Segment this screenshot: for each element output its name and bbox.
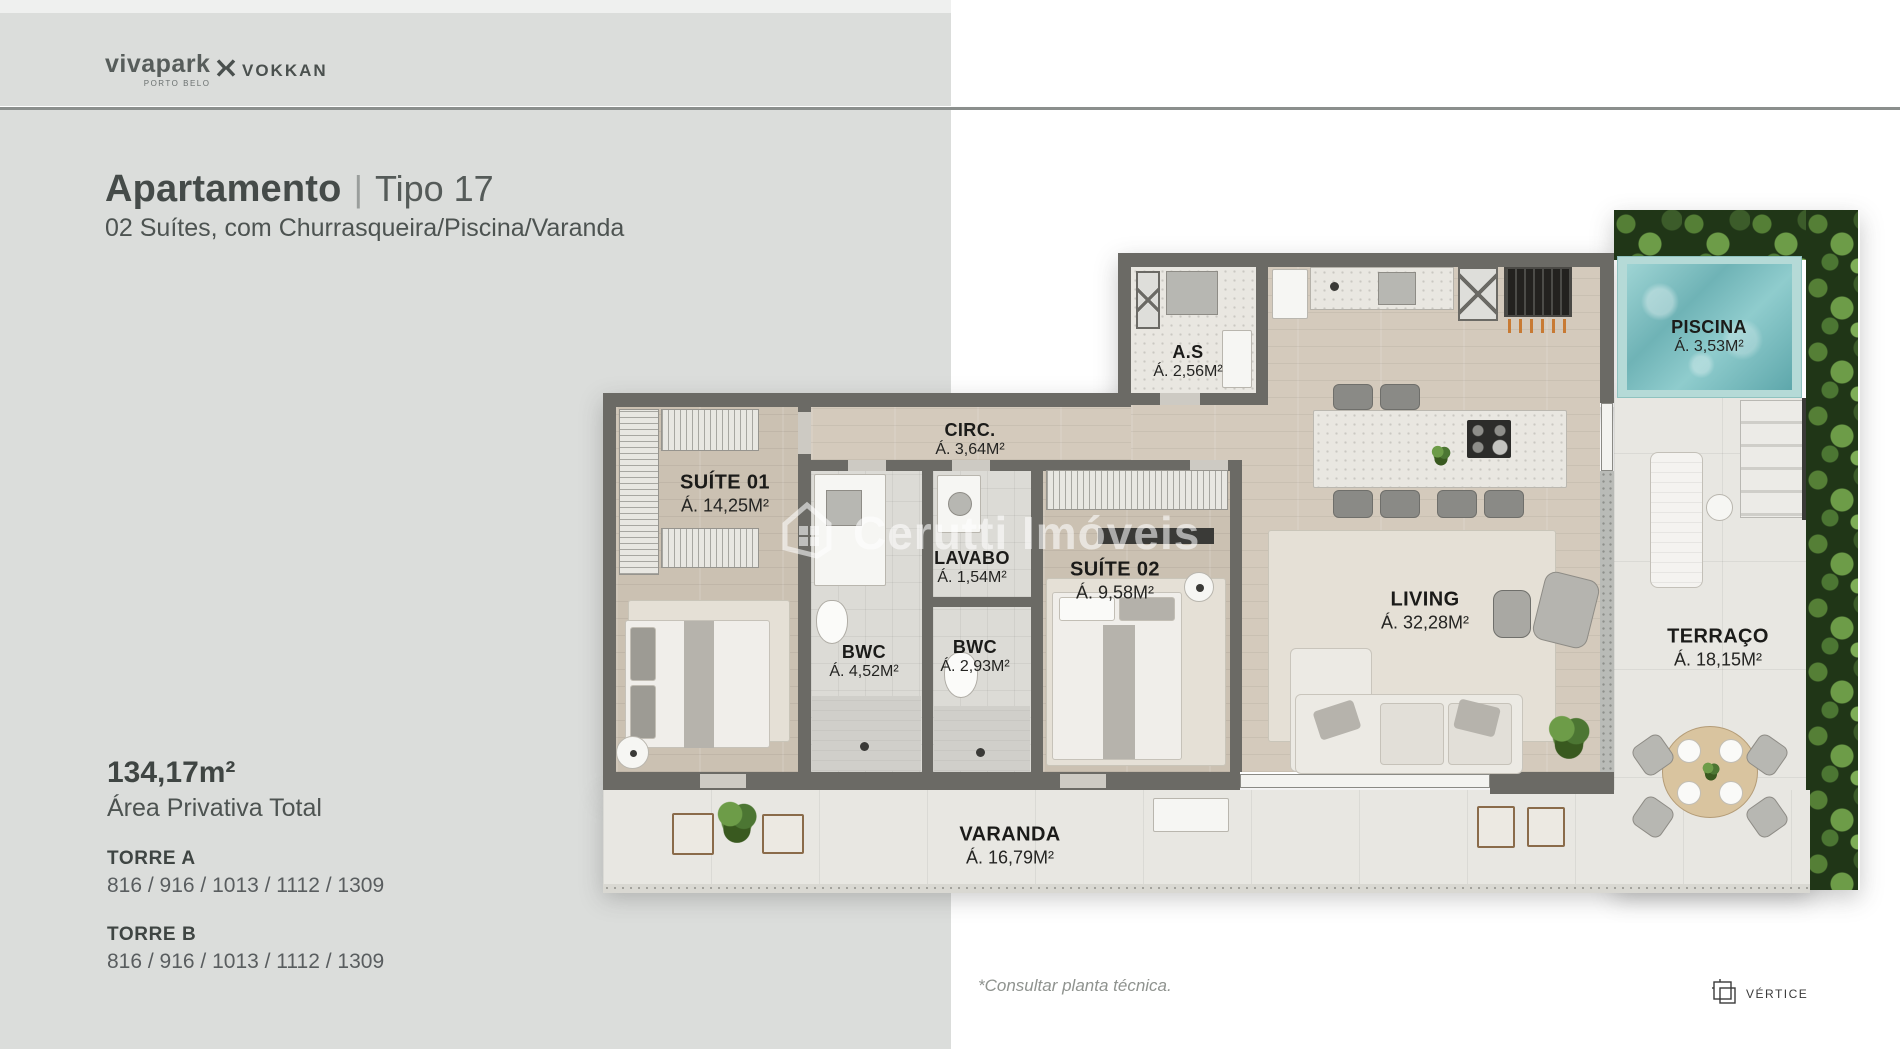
bwc1-shower-head (860, 742, 869, 751)
suite2-bed (1052, 592, 1182, 760)
room-label-varanda: VARANDA Á. 16,79M² (959, 824, 1060, 869)
living-pouf (1493, 590, 1531, 638)
room-label-suite-01: SUÍTE 01 Á. 14,25M² (680, 472, 770, 517)
island-stool (1333, 384, 1373, 410)
room-label-piscina: PISCINA Á. 3,53M² (1671, 317, 1747, 357)
page: vivapark PORTO BELO VOKKAN Apartamento |… (0, 0, 1900, 1049)
wall-bottom-suites (603, 772, 1240, 790)
vertice-logo: VÉRTICE (1712, 978, 1808, 1010)
wall-suite2-right (1230, 460, 1242, 772)
sun-lounger (1650, 452, 1703, 588)
kitchen-sink (1378, 272, 1416, 305)
varanda-bench (1153, 798, 1229, 832)
suite1-pillow (630, 627, 656, 681)
terrace-stairs (1740, 400, 1804, 518)
suite1-varanda-door (700, 774, 746, 788)
island-chair (1437, 490, 1477, 518)
wall-left (603, 393, 616, 790)
room-label-bwc1: BWC Á. 4,52M² (829, 642, 898, 682)
island-chair (1484, 490, 1524, 518)
suite2-bed-runner (1103, 625, 1135, 759)
bwc2-shower-head (976, 748, 985, 757)
bwc2-shower (934, 706, 1030, 771)
kitchen-faucet (1330, 282, 1339, 291)
living-varanda-glass-doors (1240, 774, 1490, 788)
bwc1-shower (812, 696, 921, 771)
right-greenery-strip (1806, 210, 1858, 890)
suite2-table-dot (1196, 584, 1204, 592)
wall-right-upper (1600, 253, 1614, 403)
churrasqueira-skewers (1508, 319, 1568, 333)
room-label-as: A.S Á. 2,56M² (1153, 342, 1222, 382)
island-chair (1333, 490, 1373, 518)
suite2-side-table (1184, 572, 1214, 602)
plate (1719, 739, 1743, 763)
wall-bottom-living (1490, 772, 1614, 794)
floor-plan: SUÍTE 01 Á. 14,25M² CIRC. Á. 3,64M² A.S … (0, 0, 1900, 1049)
wall-kitchen-step (1118, 253, 1131, 407)
lavabo-door (952, 460, 990, 471)
as-door (1160, 393, 1200, 405)
room-label-terraco: TERRAÇO Á. 18,15M² (1667, 626, 1769, 671)
as-laundry-sink (1166, 271, 1218, 315)
bwc1-door (848, 460, 886, 471)
plate (1677, 739, 1701, 763)
wall-as-right (1256, 267, 1268, 393)
terrace-door-glass (1601, 403, 1613, 471)
varanda-stool (762, 814, 804, 854)
room-label-bwc2: BWC Á. 2,93M² (940, 637, 1009, 677)
wall-right-lower (1600, 471, 1614, 772)
suite1-round-table (616, 736, 649, 769)
outdoor-curb (603, 884, 1810, 893)
suite1-wardrobe-mid (661, 528, 759, 568)
suite1-bed (625, 620, 770, 748)
living-sofa (1295, 694, 1523, 774)
watermark-house-icon (775, 498, 839, 567)
wall-top-left (603, 393, 1118, 407)
island-bowl (1430, 444, 1452, 466)
kitchen-duct-shaft (1458, 267, 1498, 321)
bwc1-toilet (816, 600, 848, 644)
churrasqueira-grill (1504, 267, 1572, 317)
wall-kitchen-top (1118, 253, 1614, 267)
living-plant (1545, 712, 1593, 760)
as-duct-shaft (1136, 271, 1160, 329)
suite1-table-dot (630, 750, 637, 757)
room-label-circ: CIRC. Á. 3,64M² (935, 420, 1004, 460)
island-cooktop (1467, 420, 1511, 458)
as-shelf (1222, 330, 1252, 388)
outdoor-chair (1527, 807, 1565, 847)
wall-lavabo-bwc2 (933, 597, 1031, 607)
technical-note: *Consultar planta técnica. (978, 976, 1172, 996)
terrace-dining-table (1662, 726, 1758, 818)
island-chair (1380, 490, 1420, 518)
plate (1677, 781, 1701, 805)
varanda-stool (672, 813, 714, 855)
room-label-living: LIVING Á. 32,28M² (1381, 589, 1469, 634)
stairs-rail (1802, 398, 1806, 520)
suite1-bed-runner (684, 621, 714, 748)
sofa-pillow (1312, 699, 1361, 741)
suite1-wardrobe-left (619, 409, 659, 575)
kitchen-fridge (1272, 269, 1308, 319)
sofa-cushion (1380, 703, 1444, 765)
suite2-varanda-door (1060, 774, 1106, 788)
varanda-plant (714, 798, 760, 844)
suite1-pillow (630, 685, 656, 739)
table-centerpiece (1701, 761, 1721, 781)
watermark: Cerutti Imóveis (775, 498, 1200, 567)
vertice-icon (1712, 978, 1739, 1010)
watermark-text: Cerutti Imóveis (853, 506, 1200, 560)
outdoor-chair (1477, 806, 1515, 848)
suite1-door (798, 412, 811, 454)
lounger-side-table (1706, 494, 1733, 521)
island-stool (1380, 384, 1420, 410)
plate (1719, 781, 1743, 805)
suite1-wardrobe-top (661, 409, 759, 451)
vertice-text: VÉRTICE (1746, 987, 1808, 1001)
